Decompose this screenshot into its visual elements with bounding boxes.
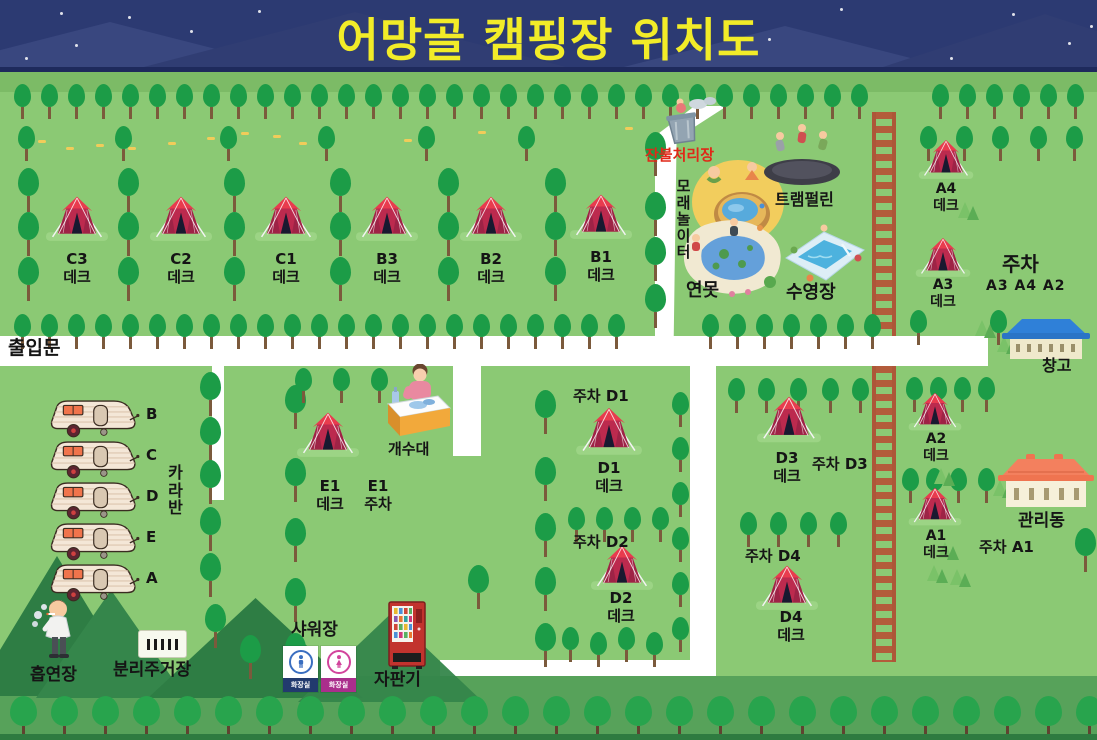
tree: [333, 368, 350, 403]
tree: [672, 482, 689, 517]
tree: [500, 84, 517, 119]
tree: [672, 527, 689, 562]
tree: [200, 417, 221, 461]
admin-building-illustration: [998, 452, 1094, 514]
tree: [149, 84, 166, 119]
toilet-label: 화장실: [321, 678, 356, 692]
night-sky-header: 어망골 캠핑장 위치도: [0, 0, 1097, 72]
star: [1012, 13, 1015, 16]
tree: [837, 314, 854, 349]
tree: [14, 84, 31, 119]
tree: [68, 314, 85, 349]
tent-b2: [458, 192, 524, 243]
tree: [830, 512, 847, 547]
label-a2-deck: A2데크: [908, 431, 964, 464]
tree: [392, 84, 409, 119]
smoking-area-label: 흡연장: [30, 666, 77, 686]
firefly: [96, 144, 104, 147]
tree: [203, 84, 220, 119]
tree: [420, 696, 447, 739]
page-title: 어망골 캠핑장 위치도: [337, 4, 761, 70]
tree: [584, 696, 611, 739]
tree: [220, 126, 237, 161]
star: [950, 57, 953, 60]
tree: [115, 126, 132, 161]
label-c1-deck: C1데크: [253, 251, 319, 286]
caravan-b: [46, 396, 140, 441]
caravan-letter-c: C: [146, 447, 157, 464]
tree: [871, 696, 898, 739]
parking-d1-label: 주차 D1: [573, 388, 629, 405]
tree: [1035, 696, 1062, 739]
tree: [284, 84, 301, 119]
tree: [740, 512, 757, 547]
tree: [535, 390, 556, 434]
tree: [535, 567, 556, 611]
caravan-letter-e: E: [146, 529, 156, 546]
tree: [716, 84, 733, 119]
tree: [1040, 84, 1057, 119]
admin-building-label: 관리동: [1018, 512, 1065, 532]
sand-playground-label: 모래놀이터: [674, 178, 693, 261]
parking-area-a-title: 주차: [1002, 253, 1039, 276]
tree: [824, 84, 841, 119]
ember-disposal-label: 잔불처리장: [645, 147, 714, 164]
star: [1068, 42, 1071, 45]
label-c2-deck: C2데크: [148, 251, 214, 286]
firefly: [241, 132, 249, 135]
tent-d3: [755, 392, 823, 445]
smoking-man-illustration: [28, 593, 86, 669]
tree: [338, 314, 355, 349]
tree: [535, 457, 556, 501]
tree: [224, 257, 245, 301]
firefly: [168, 142, 176, 145]
firefly: [404, 139, 412, 142]
tree: [545, 168, 566, 212]
tent-a2: [907, 389, 963, 433]
tree: [702, 314, 719, 349]
tree: [527, 84, 544, 119]
sink-illustration: [382, 364, 454, 448]
tree: [285, 518, 306, 562]
sink-label: 개수대: [388, 441, 429, 458]
label-d1-deck: D1데크: [586, 460, 632, 495]
tree: [635, 84, 652, 119]
tree: [554, 314, 571, 349]
tree: [224, 212, 245, 256]
tree: [18, 126, 35, 161]
tree: [618, 627, 635, 662]
parking-area-a-row: A3 A4 A2: [986, 278, 1065, 294]
tree: [672, 437, 689, 472]
tree: [215, 696, 242, 739]
tree: [92, 696, 119, 739]
tree: [581, 84, 598, 119]
tree: [18, 168, 39, 212]
tree: [756, 314, 773, 349]
recycling-label: 분리주거장: [113, 661, 191, 681]
pine-cluster: [975, 318, 999, 340]
tree: [257, 314, 274, 349]
tree: [365, 314, 382, 349]
tent-b3: [354, 192, 420, 243]
star: [258, 10, 261, 13]
fence-upper: [872, 112, 896, 336]
tree: [205, 604, 226, 648]
tree: [285, 458, 306, 502]
tree: [500, 314, 517, 349]
tree: [419, 314, 436, 349]
recycling-sign: [138, 630, 187, 658]
tree: [284, 314, 301, 349]
tent-c3: [44, 192, 110, 243]
tree: [810, 314, 827, 349]
road-vertical-mid: [453, 336, 481, 456]
tree: [149, 314, 166, 349]
tree: [672, 617, 689, 652]
label-e1-parking: E1주차: [356, 478, 400, 513]
caravan-letter-b: B: [146, 406, 157, 423]
tree: [535, 623, 556, 667]
tree: [554, 84, 571, 119]
fence-lower: [872, 366, 896, 662]
tent-a4: [917, 136, 975, 181]
tree: [562, 627, 579, 662]
tree: [95, 84, 112, 119]
caravan-area-label: 카라반: [166, 464, 185, 517]
firefly: [299, 142, 307, 145]
tree: [338, 696, 365, 739]
tree: [330, 168, 351, 212]
tent-e1: [295, 408, 361, 459]
label-a4-deck: A4데크: [915, 181, 977, 214]
men-icon: [283, 646, 318, 678]
tree: [256, 696, 283, 739]
tree: [51, 696, 78, 739]
tree: [545, 257, 566, 301]
tree: [257, 84, 274, 119]
firefly: [38, 140, 46, 143]
tree: [800, 512, 817, 547]
tree: [852, 378, 869, 413]
tree: [419, 84, 436, 119]
tree: [959, 84, 976, 119]
tree: [438, 212, 459, 256]
tree: [174, 696, 201, 739]
tree: [672, 392, 689, 427]
tree: [18, 257, 39, 301]
tree: [338, 84, 355, 119]
parking-d2-label: 주차 D2: [573, 534, 629, 551]
tree: [118, 212, 139, 256]
tree: [910, 310, 927, 345]
tree: [672, 572, 689, 607]
tree: [95, 314, 112, 349]
tree: [545, 212, 566, 256]
tree: [932, 84, 949, 119]
tree: [1030, 126, 1047, 161]
firefly: [207, 137, 215, 140]
tree: [311, 84, 328, 119]
tree: [1067, 84, 1084, 119]
tree: [122, 84, 139, 119]
star: [25, 57, 28, 60]
tree: [518, 126, 535, 161]
tree: [743, 84, 760, 119]
label-b2-deck: B2데크: [458, 251, 524, 286]
tree: [728, 378, 745, 413]
tree: [953, 696, 980, 739]
firefly: [66, 147, 74, 150]
caravan-letter-a: A: [146, 570, 158, 587]
tree: [830, 696, 857, 739]
toilet-label: 화장실: [283, 678, 318, 692]
label-e1-deck: E1데크: [308, 478, 352, 513]
tree: [446, 84, 463, 119]
tree: [461, 696, 488, 739]
tree: [994, 696, 1021, 739]
toilet-sign-men: 화장실: [283, 646, 318, 692]
label-a3-deck: A3데크: [912, 277, 974, 310]
tree: [912, 696, 939, 739]
star: [190, 30, 193, 33]
tree: [770, 512, 787, 547]
tree: [122, 314, 139, 349]
tree: [176, 314, 193, 349]
tree: [446, 314, 463, 349]
tree: [783, 314, 800, 349]
trampoline-illustration: [756, 122, 848, 196]
pool-label: 수영장: [786, 283, 836, 304]
toilet-sign-women: 화장실: [321, 646, 356, 692]
tent-c2: [148, 192, 214, 243]
caravan-d: [46, 478, 140, 523]
vending-label: 자판기: [374, 671, 421, 691]
tree: [502, 696, 529, 739]
tree: [118, 257, 139, 301]
tree: [797, 84, 814, 119]
tree: [318, 126, 335, 161]
tree: [285, 578, 306, 622]
tree: [473, 84, 490, 119]
tent-d4: [754, 561, 820, 612]
tree: [851, 84, 868, 119]
women-icon: [321, 646, 356, 678]
tent-c1: [253, 192, 319, 243]
tree: [625, 696, 652, 739]
caravan-c: [46, 437, 140, 482]
label-d3-deck: D3데크: [764, 450, 810, 485]
tree: [230, 314, 247, 349]
tree: [864, 314, 881, 349]
tree: [1013, 84, 1030, 119]
tree: [230, 84, 247, 119]
tree: [646, 632, 663, 667]
star: [60, 12, 63, 15]
tree: [581, 314, 598, 349]
tree: [418, 126, 435, 161]
tent-d1: [574, 403, 644, 458]
tree: [438, 257, 459, 301]
pine-cluster: [927, 563, 951, 585]
star: [768, 38, 771, 41]
parking-d3-label: 주차 D3: [812, 456, 868, 473]
tree: [200, 372, 221, 416]
tree: [645, 192, 666, 236]
tree: [1075, 528, 1096, 572]
tree: [311, 314, 328, 349]
campground-map: B C D E A 카라반: [0, 0, 1097, 740]
tree: [68, 84, 85, 119]
road-bottom-horizontal: [440, 660, 716, 676]
tree: [986, 84, 1003, 119]
mountain-silhouette: [880, 14, 1097, 68]
tree: [645, 284, 666, 328]
tree: [748, 696, 775, 739]
tree: [1066, 126, 1083, 161]
tree: [41, 84, 58, 119]
trampoline-label: 트램펄린: [775, 191, 834, 209]
tree: [176, 84, 193, 119]
star: [75, 44, 78, 47]
tree: [330, 212, 351, 256]
tree: [1076, 696, 1097, 739]
tree: [438, 168, 459, 212]
vending-machine-illustration: [388, 601, 426, 675]
tree: [992, 126, 1009, 161]
star: [128, 16, 131, 19]
tree: [535, 513, 556, 557]
caravan-letter-d: D: [146, 488, 158, 505]
label-d2-deck: D2데크: [598, 590, 644, 625]
tree: [200, 507, 221, 551]
tree: [707, 696, 734, 739]
tree: [770, 84, 787, 119]
caravan-e: [46, 519, 140, 564]
tent-a3: [914, 234, 972, 279]
tree: [645, 237, 666, 281]
tree: [789, 696, 816, 739]
firefly: [625, 127, 633, 130]
tree: [330, 257, 351, 301]
tent-a1: [907, 484, 963, 528]
tree: [527, 314, 544, 349]
road-vertical-right: [690, 336, 716, 676]
tree: [133, 696, 160, 739]
star: [1090, 25, 1093, 28]
tree: [203, 314, 220, 349]
tree: [729, 314, 746, 349]
label-c3-deck: C3데크: [44, 251, 110, 286]
tree: [468, 565, 489, 609]
parking-a1-label: 주차 A1: [979, 539, 1034, 556]
tree: [392, 314, 409, 349]
label-d4-deck: D4데크: [768, 609, 814, 644]
parking-d4-label: 주차 D4: [745, 548, 801, 565]
entrance-label: 출입문: [8, 338, 60, 360]
tree: [200, 460, 221, 504]
tree: [473, 314, 490, 349]
tree: [666, 696, 693, 739]
firefly: [478, 131, 486, 134]
tree: [18, 212, 39, 256]
bottom-edge-strip: [0, 734, 1097, 740]
star: [840, 8, 843, 11]
tree: [608, 84, 625, 119]
tree: [10, 696, 37, 739]
label-a1-deck: A1데크: [908, 528, 964, 561]
firefly: [273, 135, 281, 138]
label-b1-deck: B1데크: [568, 249, 634, 284]
shower-label: 샤워장: [291, 621, 338, 641]
tree: [590, 632, 607, 667]
tree: [379, 696, 406, 739]
tree: [652, 507, 669, 542]
tree: [297, 696, 324, 739]
tree: [118, 168, 139, 212]
tree: [240, 635, 261, 679]
tree: [822, 378, 839, 413]
tree: [224, 168, 245, 212]
tree: [543, 696, 570, 739]
tree: [608, 314, 625, 349]
pond-label: 연못: [686, 281, 719, 302]
tree: [978, 377, 995, 412]
tree: [200, 553, 221, 597]
tree: [365, 84, 382, 119]
warehouse-label: 창고: [1042, 357, 1071, 375]
tent-b1: [568, 190, 634, 241]
pine-cluster: [950, 567, 974, 589]
tree: [295, 368, 312, 403]
label-b3-deck: B3데크: [354, 251, 420, 286]
